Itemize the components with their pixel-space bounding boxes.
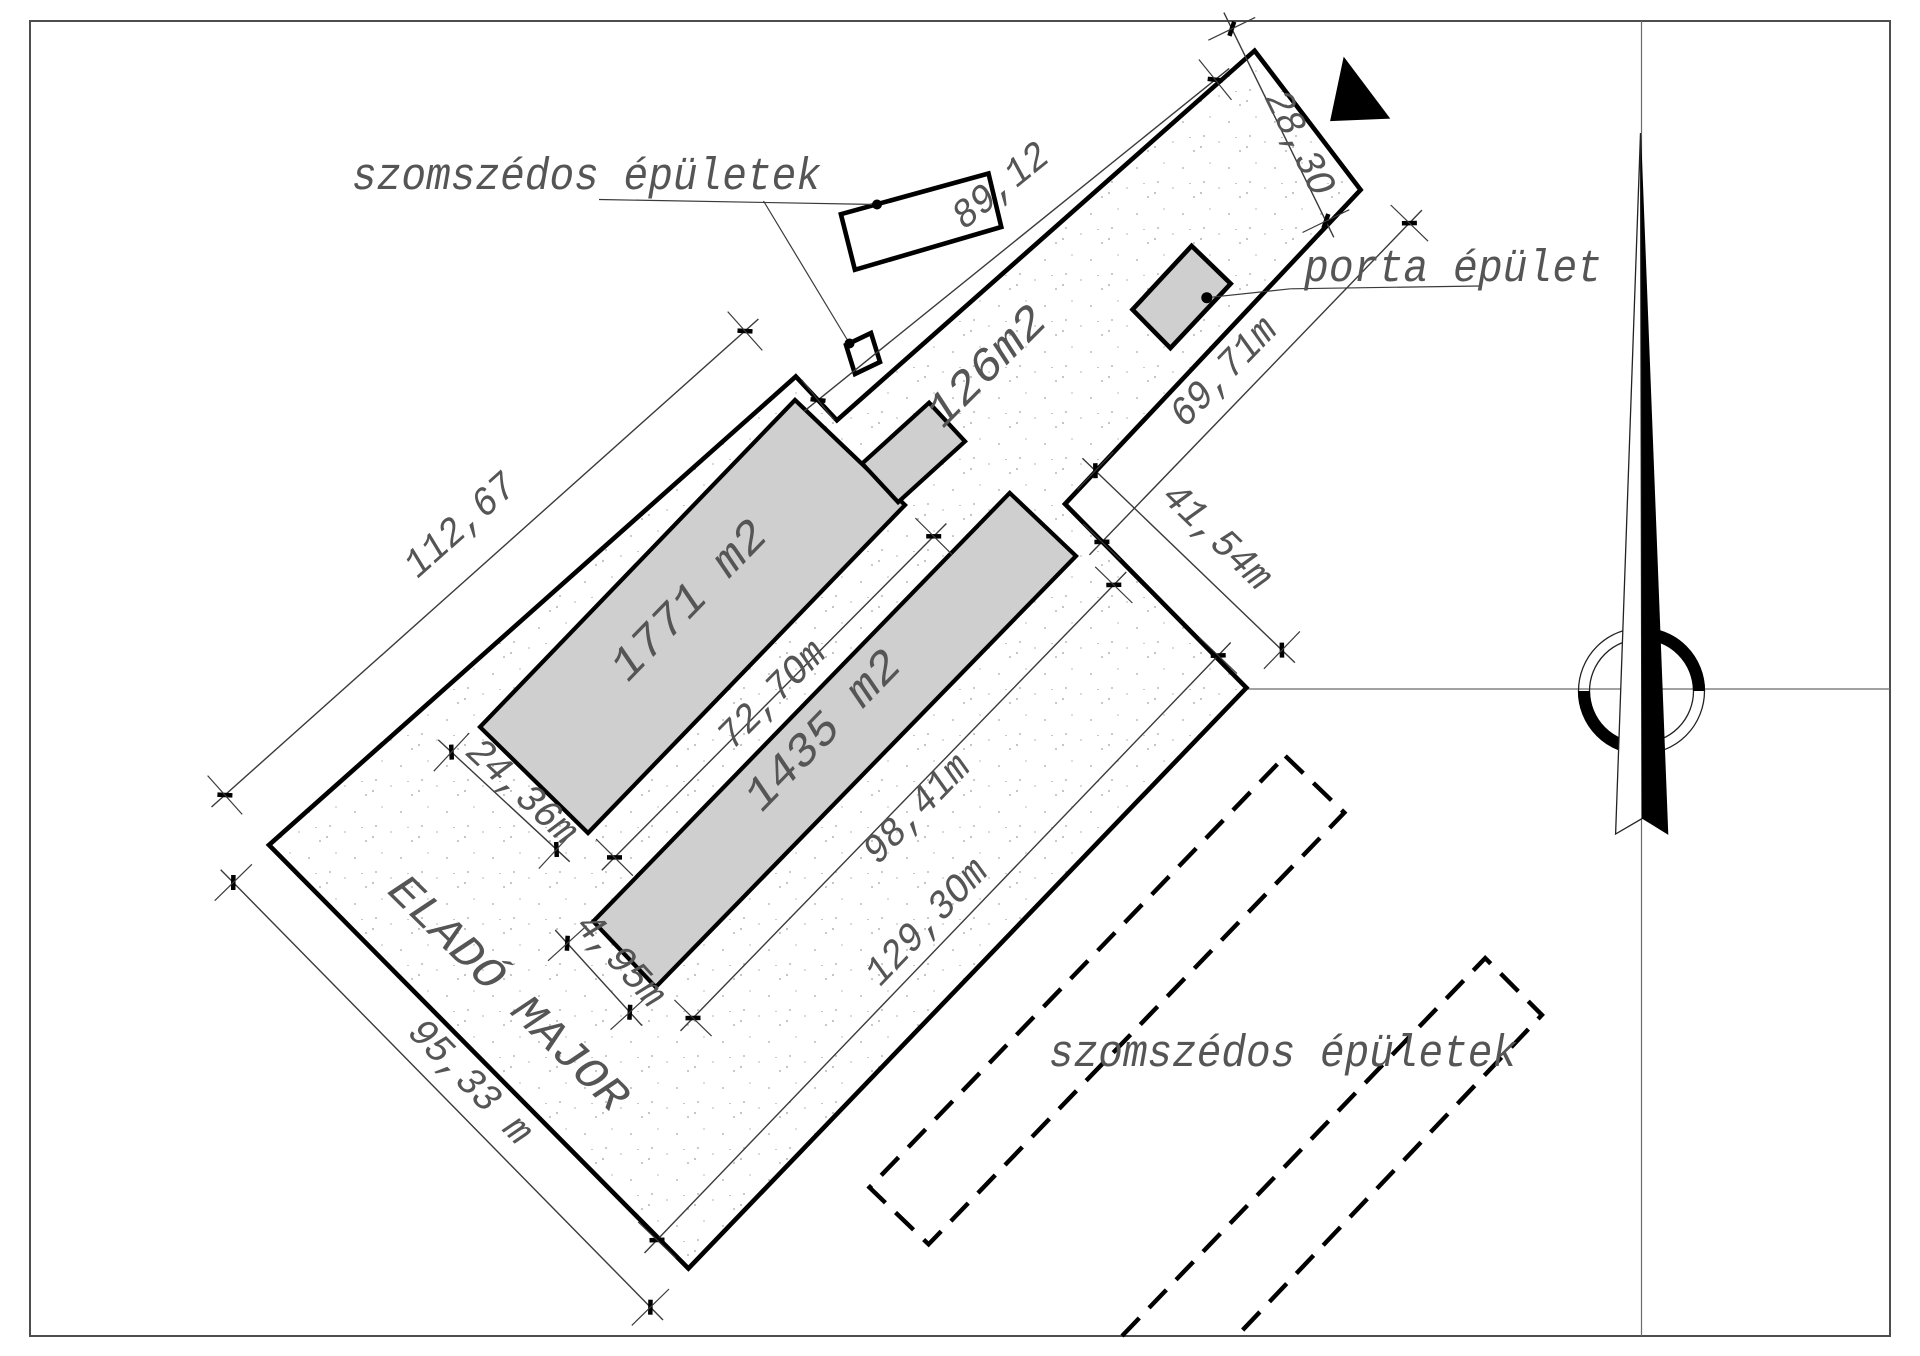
svg-text:41,54m: 41,54m	[1151, 475, 1279, 601]
svg-text:szomszédos épületek: szomszédos épületek	[1049, 1029, 1517, 1080]
svg-text:szomszédos épületek: szomszédos épületek	[352, 152, 821, 203]
svg-text:porta épület: porta épület	[1303, 244, 1602, 295]
svg-text:112,67: 112,67	[396, 465, 527, 588]
